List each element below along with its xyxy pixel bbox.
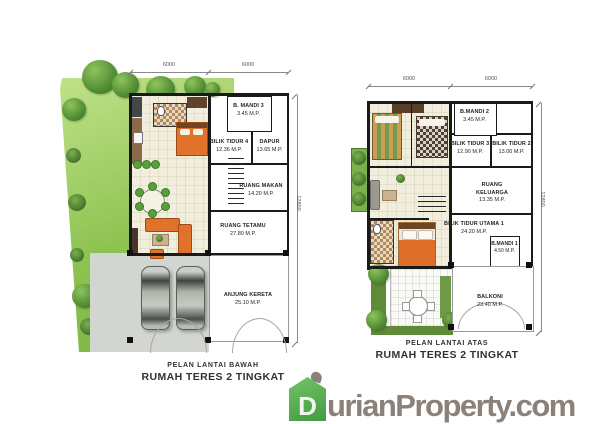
toilet bbox=[157, 106, 165, 116]
brand-text: roperty.com bbox=[414, 390, 574, 421]
pillow bbox=[375, 116, 399, 123]
wall bbox=[367, 101, 370, 270]
patio-table bbox=[408, 296, 428, 316]
room-label: RUANG TETAMU 27.80 M.P. bbox=[215, 223, 271, 238]
upper-floor-plan: B.MANDI 2 3.45 M.P. BILIK TIDUR 3 12.90 … bbox=[330, 0, 600, 424]
dining-chair bbox=[161, 202, 170, 211]
headboard bbox=[177, 123, 207, 128]
room-label: B.MANDI 2 3.45 M.P. bbox=[454, 109, 495, 124]
bed bbox=[416, 116, 448, 158]
wall bbox=[129, 93, 132, 255]
plan-caption: PELAN LANTAI BAWAH RUMAH TERES 2 TINGKAT bbox=[133, 362, 293, 383]
room-label: B.MANDI 1 4.50 M.P. bbox=[491, 241, 518, 255]
brand-letter-d: D bbox=[289, 393, 326, 419]
pillow bbox=[419, 119, 445, 126]
caption-line2: RUMAH TERES 2 TINGKAT bbox=[133, 371, 293, 383]
dining-chair bbox=[135, 188, 144, 197]
dimension-label: 6000 bbox=[228, 62, 268, 68]
patio-chair bbox=[413, 290, 422, 298]
bush-icon bbox=[66, 148, 81, 163]
dimension-label: 6000 bbox=[471, 76, 511, 82]
bush-icon bbox=[70, 248, 84, 262]
column bbox=[526, 324, 532, 330]
pillow bbox=[418, 230, 433, 240]
patio-chair bbox=[402, 302, 410, 311]
column bbox=[205, 250, 211, 256]
room-label: BILIK TIDUR 3 12.90 M.P. bbox=[450, 141, 490, 156]
floor-plan-sheet: B. MANDI 3 3.45 M.P. BILIK TIDUR 4 12.36… bbox=[0, 0, 600, 424]
patio-chair bbox=[427, 302, 435, 311]
patio-chair bbox=[413, 315, 422, 323]
toilet bbox=[373, 224, 381, 234]
caption-line1: PELAN LANTAI ATAS bbox=[367, 340, 527, 347]
column bbox=[205, 337, 211, 343]
wall bbox=[450, 213, 532, 215]
stool bbox=[133, 160, 142, 169]
wall bbox=[367, 266, 452, 269]
dining-chair bbox=[148, 182, 157, 191]
column bbox=[127, 250, 133, 256]
plant-icon bbox=[156, 235, 163, 242]
brand-house-icon: D bbox=[289, 376, 326, 421]
room-label: BALKONI 23.40 M.P. bbox=[462, 294, 518, 309]
wall bbox=[209, 210, 287, 212]
bed bbox=[372, 113, 402, 160]
room-label: BILIK TIDUR 4 12.36 M.P. bbox=[207, 139, 251, 154]
column bbox=[127, 337, 133, 343]
sofa bbox=[145, 218, 180, 232]
room-label: RUANG KELUARGA 13.35 M.P. bbox=[465, 182, 519, 205]
ground-floor-plan: B. MANDI 3 3.45 M.P. BILIK TIDUR 4 12.36… bbox=[0, 0, 330, 424]
dimension-tick bbox=[292, 342, 298, 348]
dimension-label: 12800 bbox=[295, 188, 301, 218]
wall bbox=[411, 103, 413, 166]
blanket bbox=[399, 240, 435, 267]
dimension-line bbox=[297, 95, 298, 343]
column bbox=[526, 262, 532, 268]
tree-icon bbox=[366, 310, 387, 330]
kitchen-sink bbox=[133, 132, 143, 144]
caption-line1: PELAN LANTAI BAWAH bbox=[133, 362, 293, 369]
plant-icon bbox=[396, 174, 405, 183]
dimension-tick bbox=[530, 84, 536, 90]
dimension-tick bbox=[286, 70, 292, 76]
party-wall bbox=[449, 101, 452, 268]
stool bbox=[142, 160, 151, 169]
bush-icon bbox=[68, 194, 86, 211]
coffee-table bbox=[382, 190, 397, 201]
dimension-line bbox=[541, 103, 542, 332]
pillow bbox=[180, 129, 190, 135]
dimension-tick bbox=[536, 331, 542, 337]
dining-chair bbox=[135, 202, 144, 211]
stool bbox=[151, 160, 160, 169]
bed bbox=[176, 122, 208, 156]
wall bbox=[369, 166, 532, 168]
dining-chair bbox=[148, 209, 157, 218]
room-label: DAPUR 13.65 M.P. bbox=[252, 139, 287, 154]
wall bbox=[369, 218, 429, 220]
column bbox=[283, 250, 289, 256]
tree-icon bbox=[62, 98, 86, 121]
durianproperty-watermark: D urian P roperty.com bbox=[289, 376, 575, 421]
dimension-label: 6000 bbox=[389, 76, 429, 82]
wall bbox=[209, 163, 287, 165]
room-label: BILIK TIDUR UTAMA 1 24.20 M.P. bbox=[443, 221, 505, 236]
bed bbox=[398, 222, 436, 268]
brand-letter-p: P bbox=[395, 390, 414, 421]
bush-icon bbox=[352, 192, 366, 206]
room-label: B. MANDI 3 3.45 M.P. bbox=[227, 103, 270, 118]
sofa bbox=[178, 224, 192, 254]
wardrobe bbox=[187, 97, 207, 108]
bush-icon bbox=[352, 172, 366, 186]
column bbox=[448, 324, 454, 330]
fridge bbox=[132, 97, 142, 117]
plan-caption: PELAN LANTAI ATAS RUMAH TERES 2 TINGKAT bbox=[367, 340, 527, 361]
party-wall bbox=[208, 93, 211, 255]
room-label: RUANG MAKAN 14.20 M.P. bbox=[234, 183, 288, 198]
wardrobe bbox=[392, 104, 424, 113]
room-label: ANJUNG KERETA 25.10 M.P. bbox=[219, 292, 277, 307]
dining-chair bbox=[161, 188, 170, 197]
column bbox=[448, 262, 454, 268]
dimension-label: 12800 bbox=[539, 184, 545, 214]
headboard bbox=[399, 223, 435, 229]
room-label: BILIK TIDUR 2 13.00 M.P. bbox=[491, 141, 532, 156]
pillow bbox=[402, 230, 417, 240]
dimension-label: 6000 bbox=[149, 62, 189, 68]
staircase bbox=[418, 196, 446, 216]
pillow bbox=[193, 129, 203, 135]
sofa bbox=[370, 180, 380, 210]
brand-text: urian bbox=[327, 390, 395, 421]
caption-line2: RUMAH TERES 2 TINGKAT bbox=[367, 349, 527, 361]
bush-icon bbox=[352, 151, 366, 165]
